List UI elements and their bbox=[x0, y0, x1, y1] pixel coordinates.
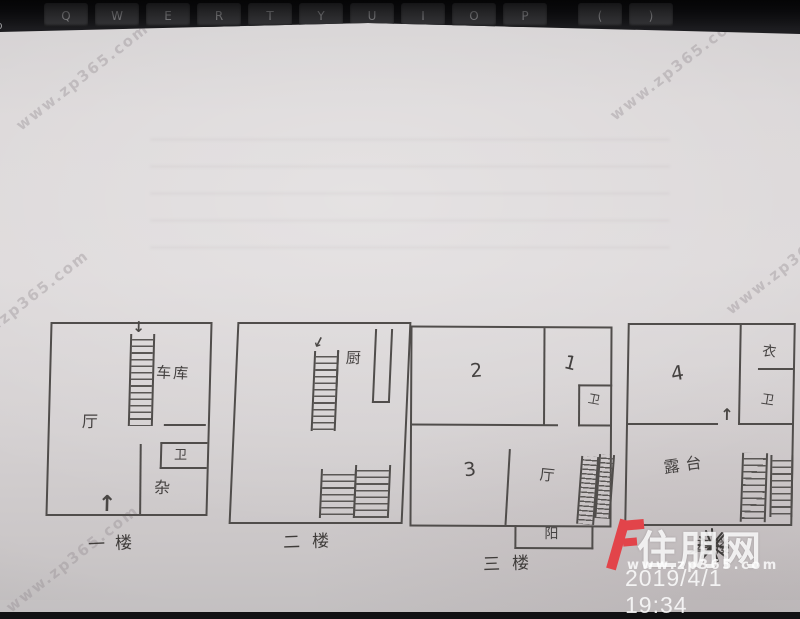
keyboard-key: ( bbox=[578, 3, 622, 27]
label-balcony: 阳 bbox=[544, 523, 558, 543]
label-bath: 卫 bbox=[174, 444, 188, 463]
caption-floor-3: 三楼 bbox=[483, 548, 542, 575]
floorplan-4: 衣 卫 ↑ 4 露台 bbox=[624, 323, 796, 526]
label-bath: 卫 bbox=[587, 389, 602, 408]
keyboard-key: Y bbox=[299, 3, 343, 27]
paper-showthrough-lines bbox=[150, 138, 670, 268]
wall bbox=[164, 424, 206, 426]
timestamp-watermark: 2019/4/1 19:34 bbox=[625, 565, 800, 619]
label-kitchen: 厨 bbox=[345, 347, 361, 368]
floorplan-1: ↓ 车库 卫 杂 厅 ↑ bbox=[45, 322, 212, 516]
caption-floor-1: 一楼 bbox=[87, 528, 142, 556]
label-garage: 车库 bbox=[156, 361, 191, 383]
keyboard-key: O bbox=[452, 3, 496, 27]
keyboard-key: ) bbox=[629, 3, 673, 27]
stairs-icon bbox=[319, 469, 357, 518]
keyboard-key: I bbox=[401, 3, 445, 27]
wall bbox=[336, 350, 340, 387]
keyboard-key: T bbox=[248, 3, 292, 27]
wall bbox=[412, 423, 558, 426]
bath-box: 卫 bbox=[578, 384, 612, 426]
keyboard-key: P bbox=[503, 3, 547, 27]
wall bbox=[504, 449, 510, 525]
stairs-icon bbox=[740, 453, 768, 522]
wall bbox=[543, 328, 546, 425]
label-closet: 衣 bbox=[761, 340, 778, 362]
wall bbox=[758, 368, 793, 370]
label-hall: 厅 bbox=[82, 408, 99, 432]
label-terrace: 露台 bbox=[662, 448, 709, 478]
bath-box: 卫 bbox=[160, 442, 208, 469]
balcony-box: 阳 bbox=[514, 525, 593, 549]
label-hall: 厅 bbox=[539, 464, 556, 486]
kitchen-duct bbox=[372, 329, 393, 403]
label-room2: 2 bbox=[469, 359, 483, 382]
wall bbox=[738, 325, 742, 425]
wall bbox=[738, 423, 792, 425]
keyboard-key: E bbox=[146, 3, 190, 27]
keyboard-key: W bbox=[95, 3, 139, 27]
stairs-icon bbox=[128, 334, 155, 426]
up-arrow-icon: ↑ bbox=[720, 405, 734, 424]
floorplan-2: ↓ 厨 bbox=[229, 322, 412, 524]
stairs-icon bbox=[311, 351, 339, 431]
label-room1: 1 bbox=[562, 351, 579, 375]
keyboard-key-tab: Tab bbox=[0, 19, 3, 32]
floorplan-3: 卫 2 1 3 厅 阳 bbox=[409, 325, 612, 527]
stairs-icon bbox=[769, 455, 793, 517]
up-arrow-icon: ↑ bbox=[97, 492, 116, 517]
stairs-icon bbox=[353, 465, 391, 518]
wall bbox=[139, 444, 142, 514]
down-arrow-icon: ↓ bbox=[309, 333, 327, 352]
label-bath: 卫 bbox=[760, 388, 776, 409]
down-arrow-icon: ↓ bbox=[132, 318, 145, 336]
keyboard-key: R bbox=[197, 3, 241, 27]
keyboard-key: Q bbox=[44, 3, 88, 27]
caption-floor-2: 二楼 bbox=[283, 526, 342, 553]
label-room4: 4 bbox=[669, 360, 685, 386]
wall bbox=[628, 423, 718, 425]
label-storage: 杂 bbox=[154, 474, 171, 498]
label-room3: 3 bbox=[462, 458, 477, 481]
